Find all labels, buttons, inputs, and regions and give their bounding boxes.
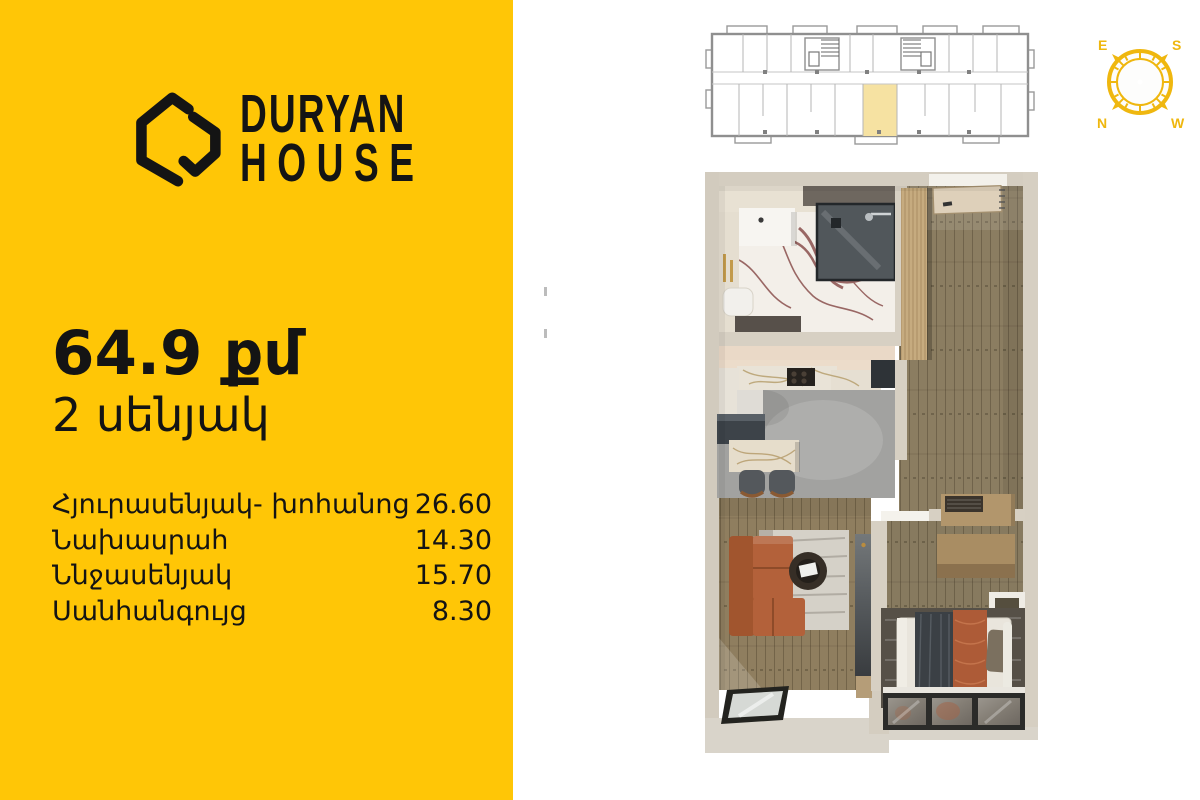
kitchen-island (729, 440, 799, 472)
bedroom (881, 494, 1025, 730)
bar-stool (739, 470, 765, 496)
living-room (719, 498, 872, 724)
wall-tick (544, 287, 547, 296)
coffee-table (789, 552, 827, 590)
house-logo-icon (128, 86, 224, 192)
flyer: DURYAN HOUSE 64.9 քմ 2 սենյակ Հյուրասենյ… (0, 0, 1200, 800)
room-row-living-kitchen: Հյուրասենյակ- խոհանոց 26.60 (52, 487, 492, 523)
stair-core (805, 38, 839, 70)
room-label: Հյուրասենյակ- խոհանոց (52, 487, 410, 523)
apartment-3d-plan (703, 168, 1040, 762)
kitchen (717, 348, 895, 498)
brand-name: DURYAN HOUSE (240, 90, 503, 188)
compass-letter-s: S (1172, 37, 1181, 53)
bathroom (719, 186, 895, 332)
compass-icon: E S N W (1090, 32, 1190, 132)
room-row-hall: Նախասրահ 14.30 (52, 523, 492, 559)
toilet (723, 288, 753, 316)
brand-line2: HOUSE (240, 138, 424, 189)
bar-stool (769, 470, 795, 496)
room-area-value: 15.70 (415, 558, 492, 594)
desk-shelf (941, 494, 1015, 526)
highlighted-unit (863, 84, 897, 136)
unit-rooms-subtitle: 2 սենյակ (52, 388, 270, 442)
room-row-bathroom: Սանհանգույց 8.30 (52, 594, 492, 630)
wall-tick (544, 329, 547, 338)
room-area-value: 8.30 (432, 594, 492, 630)
stair-core (901, 38, 935, 70)
living-window (721, 686, 789, 724)
unit-area-title: 64.9 քմ (52, 318, 302, 389)
building-floor-outline (705, 12, 1035, 148)
compass-letter-n: N (1097, 115, 1107, 131)
bedroom-windows (883, 687, 1025, 730)
room-label: Սանհանգույց (52, 594, 247, 630)
tv-panel (855, 534, 872, 676)
brand-line1: DURYAN (240, 90, 424, 139)
room-label: Ննջասենյակ (52, 558, 232, 594)
room-label: Նախասրահ (52, 523, 228, 559)
compass-letter-w: W (1171, 115, 1185, 131)
room-list: Հյուրասենյակ- խոհանոց 26.60 Նախասրահ 14.… (52, 487, 492, 630)
cooktop (787, 368, 815, 386)
room-row-bedroom: Ննջասենյակ 15.70 (52, 558, 492, 594)
brand-logo: DURYAN HOUSE (128, 86, 503, 192)
info-panel: DURYAN HOUSE 64.9 քմ 2 սենյակ Հյուրասենյ… (0, 0, 513, 800)
desk (937, 534, 1015, 578)
compass-letter-e: E (1098, 37, 1107, 53)
room-area-value: 26.60 (415, 487, 492, 523)
room-area-value: 14.30 (415, 523, 492, 559)
